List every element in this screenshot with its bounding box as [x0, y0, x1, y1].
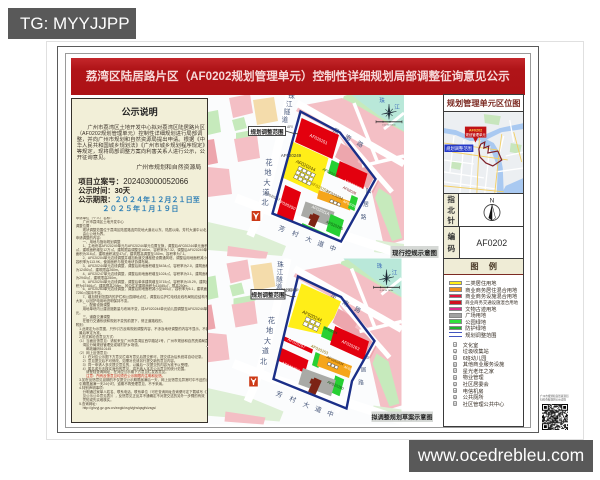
svg-text:大: 大 — [263, 178, 270, 187]
svg-text:规划调整范围: 规划调整范围 — [446, 145, 472, 152]
svg-text:道: 道 — [262, 347, 269, 356]
svg-text:花: 花 — [268, 316, 275, 325]
svg-text:扫码查看规划公示详情: 扫码查看规划公示详情 — [540, 397, 566, 401]
svg-text:N: N — [490, 198, 495, 205]
svg-text:现行控规示意图: 现行控规示意图 — [392, 248, 437, 257]
svg-text:隧: 隧 — [284, 107, 291, 116]
svg-text:道: 道 — [282, 115, 289, 124]
svg-text:道: 道 — [262, 188, 269, 197]
svg-text:珠: 珠 — [288, 95, 295, 100]
svg-text:花: 花 — [265, 158, 272, 167]
svg-text:道: 道 — [276, 282, 283, 291]
svg-text:AF020249: AF020249 — [281, 153, 302, 158]
svg-text:隧: 隧 — [276, 274, 283, 283]
svg-text:北: 北 — [261, 198, 268, 207]
svg-text:规划调整范围: 规划调整范围 — [251, 291, 285, 299]
svg-text:江: 江 — [277, 268, 284, 276]
svg-text:北: 北 — [260, 357, 267, 366]
svg-text:AF020249: AF020249 — [284, 288, 299, 292]
svg-text:地: 地 — [264, 168, 271, 177]
svg-text:AF0202: AF0202 — [469, 128, 482, 132]
svg-text:珠: 珠 — [277, 260, 284, 269]
svg-text:拟调整规划草案示意图: 拟调整规划草案示意图 — [372, 414, 433, 422]
svg-text:地: 地 — [266, 326, 273, 335]
svg-text:AF0: AF0 — [287, 125, 293, 129]
svg-text:规划管理单元: 规划管理单元 — [465, 132, 486, 137]
svg-text:江: 江 — [286, 100, 293, 108]
svg-text:大: 大 — [264, 336, 271, 345]
svg-text:规划调整范围: 规划调整范围 — [250, 128, 284, 136]
